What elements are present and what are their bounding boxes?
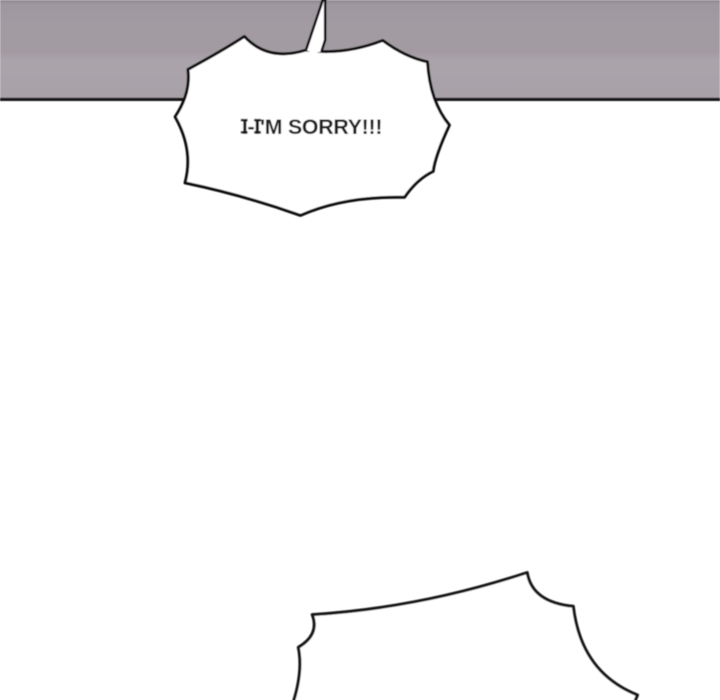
svg-text:I-I'M SORRY!!!: I-I'M SORRY!!!	[242, 115, 382, 139]
